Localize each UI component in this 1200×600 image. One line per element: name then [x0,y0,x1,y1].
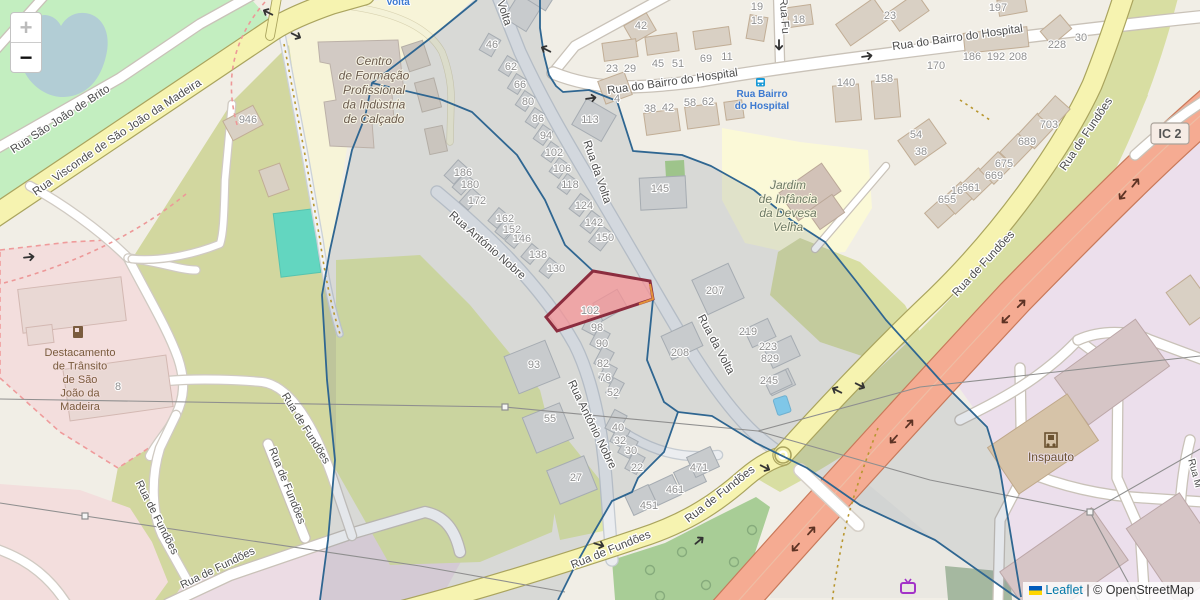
svg-text:140: 140 [837,77,855,89]
svg-text:IC 2: IC 2 [1159,127,1182,141]
svg-text:de Calçado: de Calçado [344,112,405,126]
svg-text:86: 86 [532,113,544,125]
svg-text:46: 46 [486,39,498,51]
svg-text:80: 80 [522,96,534,108]
svg-text:82: 82 [597,358,609,370]
svg-text:de Formação: de Formação [339,69,410,83]
svg-text:42: 42 [635,20,647,32]
svg-text:186: 186 [454,167,472,179]
svg-text:223: 223 [759,341,777,353]
svg-text:118: 118 [561,179,579,191]
svg-text:245: 245 [760,375,778,387]
svg-text:102: 102 [545,147,563,159]
svg-text:Inspauto: Inspauto [1028,450,1074,464]
svg-text:669: 669 [985,170,1003,182]
svg-text:38: 38 [915,146,927,158]
svg-text:30: 30 [1075,32,1087,44]
svg-text:146: 146 [513,233,531,245]
svg-text:192: 192 [987,51,1005,63]
svg-text:124: 124 [575,200,593,212]
svg-text:145: 145 [651,183,669,195]
svg-text:29: 29 [624,63,636,75]
svg-text:655: 655 [938,194,956,206]
svg-text:703: 703 [1040,119,1058,131]
svg-text:58: 58 [684,97,696,109]
svg-text:18: 18 [793,14,805,26]
svg-text:66: 66 [514,79,526,91]
svg-text:106: 106 [553,163,571,175]
svg-text:do Hospital: do Hospital [735,101,790,112]
svg-text:197: 197 [989,2,1007,14]
svg-text:208: 208 [1009,51,1027,63]
svg-text:76: 76 [599,372,611,384]
svg-text:172: 172 [468,195,486,207]
svg-text:158: 158 [875,73,893,85]
svg-text:186: 186 [963,51,981,63]
svg-text:11: 11 [721,51,732,63]
svg-text:22: 22 [631,462,643,474]
svg-text:113: 113 [581,114,599,126]
svg-text:19: 19 [751,1,763,13]
svg-text:Velha: Velha [773,220,804,234]
svg-text:93: 93 [528,359,540,371]
svg-text:102: 102 [581,305,599,317]
svg-text:62: 62 [702,96,714,108]
svg-text:461: 461 [666,484,684,496]
svg-text:54: 54 [910,129,922,141]
svg-text:Profissional: Profissional [343,83,405,97]
svg-text:Centro: Centro [356,54,392,68]
svg-text:27: 27 [570,472,582,484]
svg-text:40: 40 [612,422,624,434]
svg-text:4: 4 [614,93,620,105]
svg-text:661: 661 [962,182,980,194]
svg-text:170: 170 [927,60,945,72]
svg-text:38: 38 [644,103,656,115]
svg-text:45: 45 [652,58,664,70]
svg-text:142: 142 [585,217,603,229]
svg-text:471: 471 [690,462,708,474]
svg-text:130: 130 [547,263,565,275]
svg-text:94: 94 [540,130,552,142]
svg-text:da Indùstria: da Indùstria [343,98,406,112]
svg-text:8: 8 [115,381,121,393]
svg-text:Rua Bairro: Rua Bairro [736,89,787,100]
svg-text:207: 207 [706,285,724,297]
svg-text:Volta: Volta [386,0,410,8]
svg-text:69: 69 [700,53,712,65]
svg-text:15: 15 [751,15,763,27]
svg-text:829: 829 [761,353,779,365]
svg-text:Jardim: Jardim [769,178,806,192]
svg-text:de Trânsito: de Trânsito [53,361,107,373]
svg-text:98: 98 [591,322,603,334]
svg-text:180: 180 [461,179,479,191]
svg-text:689: 689 [1018,136,1036,148]
svg-text:55: 55 [544,413,556,425]
svg-text:de São: de São [63,374,98,386]
svg-text:228: 228 [1048,39,1066,51]
svg-text:219: 219 [739,326,757,338]
svg-text:62: 62 [505,61,517,73]
svg-text:208: 208 [671,347,689,359]
svg-text:23: 23 [884,10,896,22]
svg-text:42: 42 [662,102,674,114]
svg-text:138: 138 [529,249,547,261]
svg-text:23: 23 [606,63,618,75]
svg-text:451: 451 [640,500,658,512]
svg-text:150: 150 [596,232,614,244]
svg-text:30: 30 [625,445,637,457]
svg-text:Destacamento: Destacamento [45,347,116,359]
svg-text:da Devesa: da Devesa [759,206,817,220]
svg-text:52: 52 [607,387,619,399]
svg-text:Rua Fu: Rua Fu [777,0,791,34]
svg-text:51: 51 [672,58,684,70]
svg-text:946: 946 [239,114,257,126]
svg-text:90: 90 [596,338,608,350]
svg-text:675: 675 [995,158,1013,170]
svg-text:de Infância: de Infância [759,192,818,206]
svg-text:João da: João da [60,388,100,400]
svg-text:Madeira: Madeira [60,401,101,413]
